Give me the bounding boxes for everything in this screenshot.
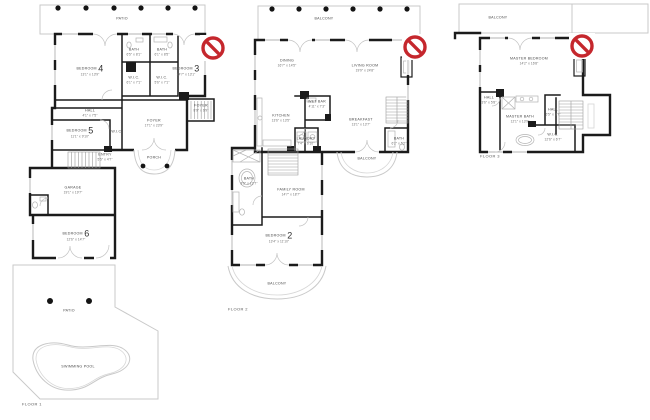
balcony-top3-outline: [459, 4, 648, 33]
porch-outline: [134, 150, 175, 174]
room-label-balcony-bottom: BALCONY: [268, 282, 287, 287]
room-label-foyer-small: FOYER8'9" x 6'9": [193, 104, 208, 113]
room-label-bath-upper: BATH6'2" x 5'2": [391, 137, 406, 146]
balcony-top-outline: [258, 6, 420, 40]
room-label-porch: PORCH: [147, 156, 161, 161]
room-label-patio-lower: PATIO: [63, 309, 75, 314]
room-label-hall-small: HALL3'6" x 5'8": [481, 96, 496, 105]
room-label-breakfast: BREAKFAST13'1" x 13'7": [349, 118, 372, 127]
patio-columns: [55, 5, 197, 10]
floor1-inner-walls: [30, 34, 187, 215]
room-label-balcony-mid: BALCONY: [358, 157, 377, 162]
room-label-hall-f1: HALL4'1" x 7'5": [82, 109, 97, 118]
room-label-foyer: FOYER17'1" x 23'9": [145, 119, 164, 128]
room-label-bedroom-4: BEDROOM413'1" x 13'9": [76, 65, 103, 76]
room-label-entry: ENTRY5'5" x 4'7": [97, 153, 112, 162]
balcony-columns: [269, 6, 409, 11]
room-label-balcony-top3: BALCONY: [489, 16, 508, 21]
room-label-garage: GARAGE19'1" x 19'7": [64, 186, 83, 195]
room-label-bath-2: BATH6'1" x 8'5": [154, 48, 169, 57]
floor2-fixtures: [233, 98, 405, 215]
patio-lower-outline: [13, 265, 158, 399]
room-label-kitchen: KITCHEN13'6" x 13'5": [272, 114, 291, 123]
room-label-family-room: FAMILY ROOM14'7" x 18'7": [277, 188, 304, 197]
room-label-bath-lower: BATH8'5" x 12'7": [241, 177, 258, 186]
room-label-balcony-top: BALCONY: [315, 17, 334, 22]
room-label-living-room: LIVING ROOM19'9" x 24'8": [352, 64, 379, 73]
floor2-plan: [228, 6, 420, 299]
room-label-wic-f3: W.I.C.12'6" x 6'7": [545, 133, 562, 142]
floor2-inner-walls: [232, 96, 408, 225]
floor1-stairs-lower: [68, 152, 100, 168]
room-label-laundry: LAUNDRY7'4" x 6'10": [297, 137, 316, 146]
room-label-master-bedroom: MASTER BEDROOM14'2" x 16'8": [510, 57, 548, 66]
floor1-plan: [13, 5, 214, 399]
room-label-wic-2: W.I.C.5'6" x 7'1": [154, 76, 169, 85]
room-label-wet-bar: WET BAR4'11" x 7'3": [308, 100, 326, 109]
floor3-plan: [455, 4, 648, 152]
room-label-hall-f3: HALL6'5" x 8'7": [545, 108, 560, 117]
floor-1-label: FLOOR 1: [22, 402, 42, 407]
no-photo-icon-1: [200, 35, 226, 61]
floor-3-label: FLOOR 3: [480, 154, 500, 159]
floor-2-label: FLOOR 2: [228, 307, 248, 312]
room-label-wic-3: W.I.C.: [111, 130, 122, 135]
no-photo-icon-3: [569, 33, 595, 59]
room-label-patio-top: PATIO: [116, 17, 128, 22]
room-label-wic-1: W.I.C.6'1" x 7'1": [126, 76, 141, 85]
no-photo-icon-2: [402, 34, 428, 60]
room-label-bedroom-3: BEDROOM314'7" x 13'1": [172, 65, 199, 76]
room-label-bath-1: BATH6'5" x 8'1": [126, 48, 141, 57]
room-label-master-bath: MASTER BATH12'1" x 13'9": [506, 115, 534, 124]
room-label-bedroom-2: BEDROOM213'4" x 11'10": [265, 232, 292, 243]
room-label-dining: DINING16'7" x 14'5": [278, 59, 297, 68]
room-label-pool: SWIMMING POOL: [61, 365, 94, 370]
room-label-bedroom-5: BEDROOM511'1" x 9'10": [66, 127, 93, 138]
room-label-bedroom-6: BEDROOM612'6" x 14'7": [62, 230, 89, 241]
floorplan-sheet: PATIO BEDROOM413'1" x 13'9" BATH6'5" x 8…: [0, 0, 650, 420]
